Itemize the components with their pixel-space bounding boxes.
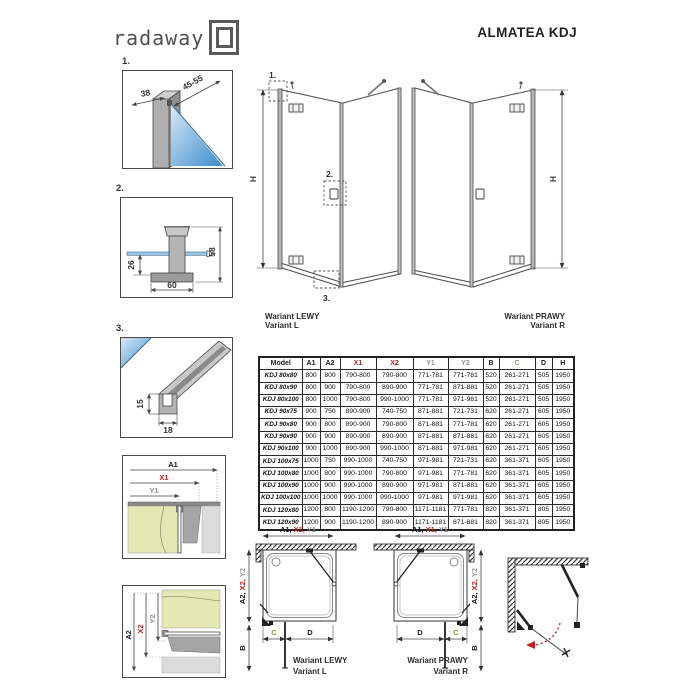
value-cell: 990-1000 <box>340 492 376 504</box>
spec-sheet-page: radaway ALMATEA KDJ 1. 2. 3. <box>0 0 700 700</box>
value-cell: 900 <box>302 419 320 431</box>
svg-text:B: B <box>470 645 479 651</box>
value-cell: 971-981 <box>413 492 448 504</box>
value-cell: 1000 <box>302 480 320 492</box>
col-header-d: D <box>535 357 552 370</box>
svg-text:X1: X1 <box>159 473 168 482</box>
door-full-open <box>282 622 288 668</box>
hinge-wall-profile <box>278 89 282 269</box>
caption-variant-right-pl: Wariant PRAWY <box>504 312 565 321</box>
value-cell: 1950 <box>552 480 574 492</box>
value-cell: 721-731 <box>448 407 483 419</box>
value-cell: 620 <box>483 456 499 468</box>
detail-2-drawing: 58 26 60 <box>120 197 233 298</box>
radaway-logo: radaway <box>113 20 239 55</box>
wall-stub <box>469 550 474 562</box>
logo-text: radaway <box>113 28 204 48</box>
svg-text:X2: X2 <box>136 624 145 633</box>
glass-edge <box>178 506 181 553</box>
svg-text:D: D <box>307 628 313 637</box>
value-cell: 605 <box>535 468 552 480</box>
svg-text:Y1: Y1 <box>149 486 158 495</box>
bottom-dimensions: C D <box>263 625 333 643</box>
value-cell: 261-271 <box>499 443 535 455</box>
value-cell: 990-1000 <box>340 456 376 468</box>
value-cell: 800 <box>302 394 320 406</box>
value-cell: 1000 <box>320 394 340 406</box>
value-cell: 990-1000 <box>376 394 413 406</box>
value-cell: 790-800 <box>376 370 413 382</box>
col-header-y1: Y1 <box>413 357 448 370</box>
side-dimensions: A2,X2,Y2 B <box>470 550 481 671</box>
table-row: KDJ 80x1008001000790-800990-1000771-7819… <box>259 394 574 406</box>
col-header-y2: Y2 <box>448 357 483 370</box>
value-cell: 740-750 <box>376 407 413 419</box>
table-row: KDJ 100x901000900990-1000890-900971-9818… <box>259 480 574 492</box>
drain <box>450 558 458 566</box>
wall-profile-section-drawing: 38 45-55 <box>123 71 232 168</box>
plan-caption-right-pl: Wariant PRAWY <box>407 656 468 665</box>
value-cell: 261-271 <box>499 394 535 406</box>
value-cell: 261-271 <box>499 382 535 394</box>
value-cell: 1950 <box>552 407 574 419</box>
value-cell: 740-750 <box>376 456 413 468</box>
svg-text:58: 58 <box>207 247 217 257</box>
svg-text:3.: 3. <box>323 293 330 303</box>
glass-corner <box>121 338 151 368</box>
value-cell: 890-900 <box>340 443 376 455</box>
table-row: KDJ 100x10010001000990-1000990-1000971-9… <box>259 492 574 504</box>
plan-caption-left-pl: Wariant LEWY <box>293 656 348 665</box>
dimension-26: 26 <box>126 255 151 275</box>
callout-3: 3. <box>314 271 339 303</box>
svg-text:A2,X2,Y2: A2,X2,Y2 <box>238 568 247 604</box>
svg-text:Y2: Y2 <box>148 614 157 623</box>
value-cell: 900 <box>302 407 320 419</box>
value-cell: 620 <box>483 480 499 492</box>
value-cell: 805 <box>535 505 552 517</box>
value-cell: 820 <box>483 505 499 517</box>
table-row: KDJ 80x90800900790-800890-900771-781871-… <box>259 382 574 394</box>
glass-panel <box>171 104 225 166</box>
value-cell: 971-981 <box>413 480 448 492</box>
dimensions-table: ModelA1A2X1X2Y1Y2BCDH KDJ 80x80800800790… <box>258 356 575 531</box>
value-cell: 721-731 <box>448 456 483 468</box>
table-row: KDJ 80x80800800790-800790-800771-781771-… <box>259 370 574 382</box>
dimension-45-55: 45-55 <box>174 73 220 106</box>
value-cell: 990-1000 <box>340 480 376 492</box>
detail-3-drawing: 15 18 <box>120 337 233 438</box>
value-cell: 971-981 <box>448 443 483 455</box>
top-knob <box>519 81 522 89</box>
value-cell: 620 <box>483 431 499 443</box>
caption-variant-right-en: Variant R <box>530 321 565 330</box>
top-dimension: A1,X1,Y1 <box>395 525 465 536</box>
value-cell: 971-981 <box>413 468 448 480</box>
elevation-variant-right: H Wariant PRAWY Variant R <box>412 79 568 330</box>
table-row: KDJ 90x1009001000890-900990-1000871-8819… <box>259 443 574 455</box>
table-row: KDJ 90x75900750890-900740-750871-881721-… <box>259 407 574 419</box>
col-header-b: B <box>483 357 499 370</box>
value-cell: 1950 <box>552 492 574 504</box>
value-cell: 971-981 <box>448 394 483 406</box>
corner-profile <box>470 103 473 287</box>
value-cell: 990-1000 <box>376 443 413 455</box>
svg-text:A1: A1 <box>168 460 178 469</box>
svg-text:15: 15 <box>135 399 145 409</box>
svg-text:38: 38 <box>140 87 151 99</box>
value-cell: 900 <box>320 480 340 492</box>
detail-3-label: 3. <box>116 324 124 334</box>
value-cell: 361-371 <box>499 505 535 517</box>
dimension-15: 15 <box>135 394 159 414</box>
value-cell: 750 <box>320 407 340 419</box>
elevation-variant-left: H <box>248 70 401 330</box>
value-cell: 800 <box>302 370 320 382</box>
model-cell: KDJ 80x90 <box>259 382 302 394</box>
value-cell: 890-900 <box>340 407 376 419</box>
value-cell: 1000 <box>302 492 320 504</box>
value-cell: 361-371 <box>499 468 535 480</box>
value-cell: 1950 <box>552 468 574 480</box>
elevation-drawings: H <box>240 60 580 332</box>
model-cell: KDJ 90x80 <box>259 419 302 431</box>
svg-text:18: 18 <box>163 425 173 435</box>
svg-text:A1,X1,Y1: A1,X1,Y1 <box>412 525 448 534</box>
table-row: KDJ 90x80900800890-900790-800871-881771-… <box>259 419 574 431</box>
outer-edge-profile <box>412 88 415 274</box>
shower-tray <box>263 550 336 621</box>
value-cell: 871-881 <box>413 419 448 431</box>
detail-1-drawing: 38 45-55 <box>122 70 233 169</box>
col-header-a2: A2 <box>320 357 340 370</box>
value-cell: 620 <box>483 443 499 455</box>
value-cell: 871-881 <box>448 480 483 492</box>
value-cell: 261-271 <box>499 431 535 443</box>
value-cell: 605 <box>535 456 552 468</box>
value-cell: 361-371 <box>499 456 535 468</box>
svg-text:H: H <box>248 176 258 182</box>
value-cell: 520 <box>483 394 499 406</box>
value-cell: 620 <box>483 492 499 504</box>
value-cell: 261-271 <box>499 370 535 382</box>
value-cell: 1950 <box>552 394 574 406</box>
col-header-h: H <box>552 357 574 370</box>
shower-tray <box>394 550 467 621</box>
value-cell: 605 <box>535 492 552 504</box>
value-cell: 771-781 <box>413 394 448 406</box>
value-cell: 1950 <box>552 431 574 443</box>
top-dimension: A1,X1,Y1 <box>263 525 333 536</box>
value-cell: 750 <box>320 456 340 468</box>
svg-text:C: C <box>453 628 459 637</box>
value-cell: 1950 <box>552 382 574 394</box>
value-cell: 871-881 <box>413 443 448 455</box>
svg-text:C: C <box>271 628 277 637</box>
door-handle <box>476 189 484 199</box>
value-cell: 261-271 <box>499 407 535 419</box>
plan-caption-right-en: Variant R <box>433 667 468 676</box>
hinge-wall-profile <box>531 89 535 269</box>
value-cell: 605 <box>535 419 552 431</box>
value-cell: 771-781 <box>448 419 483 431</box>
value-cell: 620 <box>483 407 499 419</box>
table-row: KDJ 90x90900900890-900890-900871-881871-… <box>259 431 574 443</box>
value-cell: 971-981 <box>448 492 483 504</box>
value-cell: 990-1000 <box>376 492 413 504</box>
value-cell: 620 <box>483 419 499 431</box>
value-cell: 800 <box>320 419 340 431</box>
plan-variant-right: A1,X1,Y1 <box>374 525 481 676</box>
wall-left <box>508 558 515 632</box>
model-cell: KDJ 100x100 <box>259 492 302 504</box>
hinge-bottom <box>510 256 524 264</box>
model-cell: KDJ 100x80 <box>259 468 302 480</box>
svg-text:D: D <box>417 628 423 637</box>
corner-installation-schematic <box>508 558 588 657</box>
col-header-a1: A1 <box>302 357 320 370</box>
value-cell: 800 <box>320 370 340 382</box>
value-cell: 1200 <box>302 505 320 517</box>
value-cell: 890-900 <box>376 480 413 492</box>
horizontal-adjust-section: A1 X1 Y1 <box>122 455 226 559</box>
door-handle <box>330 189 338 199</box>
value-cell: 771-781 <box>413 370 448 382</box>
wall-stub <box>256 550 261 562</box>
top-knob <box>290 81 293 89</box>
value-cell: 361-371 <box>499 480 535 492</box>
value-cell: 1000 <box>302 456 320 468</box>
value-cell: 1000 <box>320 443 340 455</box>
col-header-c: C <box>499 357 535 370</box>
rail-profile-drawing: 15 18 <box>121 338 232 437</box>
value-cell: 790-800 <box>340 394 376 406</box>
value-cell: 1950 <box>552 505 574 517</box>
swing-arrow <box>526 641 535 649</box>
caption-variant-left-en: Variant L <box>265 321 299 330</box>
table-row: KDJ 120x8012008001190-1200790-8001171-11… <box>259 505 574 517</box>
value-cell: 890-900 <box>376 382 413 394</box>
value-cell: 790-800 <box>340 382 376 394</box>
model-cell: KDJ 80x80 <box>259 370 302 382</box>
value-cell: 871-881 <box>413 431 448 443</box>
value-cell: 990-1000 <box>340 468 376 480</box>
plan-caption-left-en: Variant L <box>293 667 327 676</box>
plan-drawings: A1,X1,Y1 <box>238 523 608 695</box>
value-cell: 620 <box>483 468 499 480</box>
model-cell: KDJ 80x100 <box>259 394 302 406</box>
value-cell: 505 <box>535 394 552 406</box>
svg-text:A1,X1,Y1: A1,X1,Y1 <box>280 525 316 534</box>
side-panel <box>343 79 401 287</box>
value-cell: 505 <box>535 382 552 394</box>
value-cell: 261-271 <box>499 419 535 431</box>
value-cell: 900 <box>320 431 340 443</box>
section-box-horizontal: A1 X1 Y1 <box>122 455 226 564</box>
value-cell: 800 <box>302 382 320 394</box>
model-cell: KDJ 90x90 <box>259 431 302 443</box>
bottom-dimensions: D C <box>397 625 467 643</box>
wall-section <box>128 502 220 553</box>
value-cell: 361-371 <box>499 492 535 504</box>
value-cell: 971-981 <box>413 456 448 468</box>
value-cell: 605 <box>535 480 552 492</box>
value-cell: 800 <box>320 468 340 480</box>
detail-2-label: 2. <box>116 184 124 194</box>
value-cell: 790-800 <box>376 468 413 480</box>
value-cell: 890-900 <box>340 419 376 431</box>
value-cell: 900 <box>302 431 320 443</box>
svg-text:1.: 1. <box>269 70 276 80</box>
knob-section-drawing: 58 26 60 <box>121 198 232 297</box>
svg-text:45-55: 45-55 <box>181 73 205 92</box>
hinge-bottom <box>289 256 303 264</box>
model-cell: KDJ 120x80 <box>259 505 302 517</box>
col-header-x1: X1 <box>340 357 376 370</box>
value-cell: 871-881 <box>413 407 448 419</box>
value-cell: 871-881 <box>448 382 483 394</box>
model-cell: KDJ 100x90 <box>259 480 302 492</box>
value-cell: 800 <box>320 505 340 517</box>
model-cell: KDJ 100x75 <box>259 456 302 468</box>
svg-text:A2,X2,Y2: A2,X2,Y2 <box>470 568 479 604</box>
svg-text:2.: 2. <box>326 169 333 179</box>
dimension-18: 18 <box>159 414 177 435</box>
value-cell: 1950 <box>552 443 574 455</box>
value-cell: 1171-1181 <box>413 505 448 517</box>
drain <box>272 558 280 566</box>
value-cell: 890-900 <box>376 431 413 443</box>
value-cell: 890-900 <box>340 431 376 443</box>
wall-top <box>512 558 588 565</box>
hinge-top <box>289 104 303 112</box>
dimensions-table-wrap: ModelA1A2X1X2Y1Y2BCDH KDJ 80x80800800790… <box>258 356 575 531</box>
value-cell: 505 <box>535 370 552 382</box>
value-cell: 1000 <box>302 468 320 480</box>
value-cell: 1950 <box>552 419 574 431</box>
caption-variant-left-pl: Wariant LEWY <box>265 312 320 321</box>
svg-text:H: H <box>548 176 558 182</box>
model-cell: KDJ 90x100 <box>259 443 302 455</box>
plan-variant-left: A1,X1,Y1 <box>238 525 356 676</box>
value-cell: 900 <box>302 443 320 455</box>
value-cell: 1000 <box>320 492 340 504</box>
value-cell: 1950 <box>552 456 574 468</box>
side-dimensions: A2,X2,Y2 B <box>238 550 249 671</box>
corner-profile <box>340 103 343 287</box>
hinge-top <box>510 104 524 112</box>
value-cell: 1190-1200 <box>340 505 376 517</box>
glass-edge <box>164 632 220 635</box>
door-open <box>517 610 570 657</box>
table-header-row: ModelA1A2X1X2Y1Y2BCDH <box>259 357 574 370</box>
detail-1-label: 1. <box>122 57 130 67</box>
svg-text:26: 26 <box>126 260 136 270</box>
height-dimension: H <box>533 90 568 268</box>
table-row: KDJ 100x801000800990-1000790-800971-9817… <box>259 468 574 480</box>
value-cell: 605 <box>535 443 552 455</box>
value-cell: 771-781 <box>448 468 483 480</box>
section-box-vertical: A2 X2 Y2 <box>122 585 226 683</box>
value-cell: 605 <box>535 407 552 419</box>
model-cell: KDJ 90x75 <box>259 407 302 419</box>
svg-text:A2: A2 <box>124 630 133 640</box>
value-cell: 790-800 <box>376 505 413 517</box>
value-cell: 900 <box>320 382 340 394</box>
svg-text:60: 60 <box>167 280 177 290</box>
svg-text:B: B <box>238 645 247 651</box>
value-cell: 790-800 <box>340 370 376 382</box>
value-cell: 771-781 <box>413 382 448 394</box>
value-cell: 1950 <box>552 370 574 382</box>
vertical-adjust-section: A2 X2 Y2 <box>122 585 226 678</box>
value-cell: 605 <box>535 431 552 443</box>
value-cell: 520 <box>483 382 499 394</box>
page-title: ALMATEA KDJ <box>467 25 577 40</box>
side-panel <box>415 79 472 287</box>
value-cell: 871-881 <box>448 431 483 443</box>
col-header-model: Model <box>259 357 302 370</box>
u-channel-profile <box>159 341 231 414</box>
value-cell: 520 <box>483 370 499 382</box>
fixed-panel <box>562 563 585 628</box>
table-row: KDJ 100x751000750990-1000740-750971-9817… <box>259 456 574 468</box>
value-cell: 790-800 <box>376 419 413 431</box>
logo-square-icon <box>209 20 239 55</box>
value-cell: 771-781 <box>448 505 483 517</box>
value-cell: 771-781 <box>448 370 483 382</box>
col-header-x2: X2 <box>376 357 413 370</box>
